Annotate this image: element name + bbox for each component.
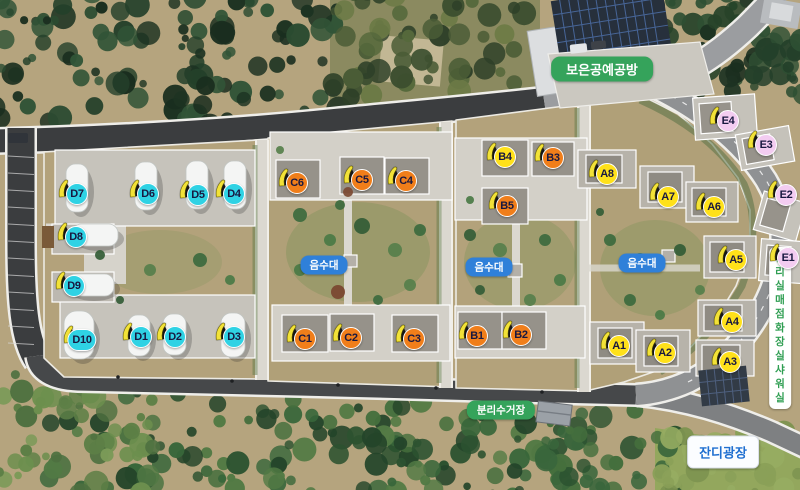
site-label: D3: [223, 326, 245, 348]
facility-line: 매점: [775, 293, 785, 321]
site-label: D1: [130, 326, 152, 348]
site-label: D6: [137, 183, 159, 205]
site-label: B2: [510, 324, 532, 346]
site-label: C6: [286, 172, 308, 194]
site-label: E2: [775, 184, 797, 206]
label-water-station-1: 음수대: [301, 256, 348, 275]
facility-line: 샤워실: [775, 363, 785, 405]
label-water-station-2: 음수대: [466, 258, 513, 277]
site-label: E3: [755, 134, 777, 156]
site-label: A6: [703, 196, 725, 218]
facility-line: 화장실: [775, 321, 785, 363]
site-label: A5: [725, 249, 747, 271]
site-label: B1: [466, 325, 488, 347]
site-label: D7: [66, 183, 88, 205]
site-label: A3: [719, 351, 741, 373]
label-craft-shop: 보은공예공방: [551, 57, 653, 82]
site-label: D5: [187, 184, 209, 206]
site-label: A1: [608, 335, 630, 357]
site-label: A4: [721, 311, 743, 333]
label-water-station-3: 음수대: [619, 254, 666, 273]
site-label: D9: [63, 275, 85, 297]
label-facilities: 관리실 매점 화장실 샤워실: [769, 247, 791, 409]
site-label: D8: [65, 226, 87, 248]
site-label: B5: [496, 195, 518, 217]
site-label: E1: [777, 247, 799, 269]
annotation-overlay: 보은공예공방 음수대 음수대 음수대 분리수거장 잔디광장 관리실 매점 화장실…: [0, 0, 800, 490]
site-label: C2: [340, 327, 362, 349]
site-label: C5: [351, 169, 373, 191]
label-lawn-plaza: 잔디광장: [687, 436, 759, 469]
campground-aerial-map: 보은공예공방 음수대 음수대 음수대 분리수거장 잔디광장 관리실 매점 화장실…: [0, 0, 800, 490]
site-label: A2: [654, 342, 676, 364]
site-label: E4: [717, 110, 739, 132]
label-recycling-station: 분리수거장: [467, 401, 535, 420]
site-label: D2: [164, 326, 186, 348]
site-label: B4: [494, 146, 516, 168]
site-label: D4: [223, 183, 245, 205]
site-label: B3: [542, 147, 564, 169]
site-label: C1: [294, 328, 316, 350]
site-label: A7: [657, 186, 679, 208]
site-label: C3: [403, 328, 425, 350]
site-label: C4: [395, 170, 417, 192]
site-label: A8: [596, 163, 618, 185]
site-label: D10: [67, 329, 96, 351]
